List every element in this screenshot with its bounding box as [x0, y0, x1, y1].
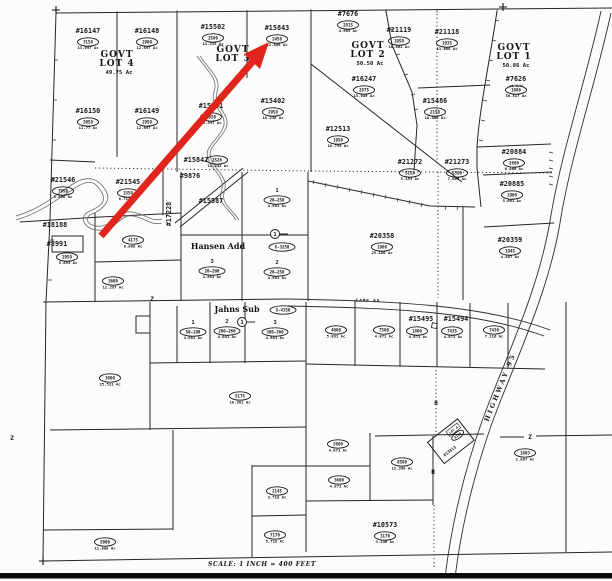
acreage-label: 12.297 Ac — [102, 285, 124, 290]
acreage-label: 12.897 Ac — [136, 125, 158, 130]
parcel-number: #16148 — [135, 27, 160, 35]
acreage-label: 5.155 Ac — [401, 176, 420, 181]
acreage-label: 10.001 Ac — [388, 44, 410, 49]
tax-lot-number: 3350 — [123, 191, 133, 196]
tax-lot-number: 7170 — [270, 533, 280, 538]
tax-lot-number: 7950 — [58, 189, 68, 194]
tax-lot-number: 2145 — [272, 489, 282, 494]
tax-lot-number: 1800 — [412, 329, 422, 334]
acreage-label: 25.511 Ac — [99, 382, 121, 387]
tax-lot-number: 2500 — [208, 36, 218, 41]
parcel-number: #16247 — [352, 75, 377, 83]
tax-lot-number: 2600 — [509, 161, 519, 166]
acreage-label: 4.881 Ac — [268, 275, 287, 280]
tax-lot-number: 1006 — [511, 88, 521, 93]
acreage-label: 13.398 Ac — [391, 466, 413, 471]
parcel-number: #21118 — [435, 28, 460, 36]
tax-lot-number: 2450 — [272, 37, 282, 42]
acreage-label: 4.881 Ac — [203, 274, 222, 279]
acreage-label: 4.871 Ac — [329, 448, 348, 453]
tax-lot-number: 2150 — [430, 110, 440, 115]
parcel-number: #21272 — [398, 158, 423, 166]
govt-lot-acreage: 49.75 Ac — [106, 70, 133, 76]
lot-number: 2 — [225, 319, 228, 325]
plat-map-canvas: #16147315013.097 Ac#16148290012.897 Ac#1… — [0, 0, 612, 581]
tax-lot-number: 1900 — [377, 245, 387, 250]
acreage-label: 4.985 Ac — [339, 28, 358, 33]
parcel-number: #12513 — [326, 125, 351, 133]
acreage-label: 11.888 Ac — [94, 546, 116, 551]
tax-lot-number: 2900 — [142, 40, 152, 45]
acreage-label: 10.008 Ac — [424, 115, 446, 120]
tax-lot-number: 3800 — [105, 376, 115, 381]
tax-lot-number: 8500 — [397, 460, 407, 465]
tax-lot-number: 1900 — [507, 193, 517, 198]
acreage-label: 10.981 Ac — [229, 400, 251, 405]
acreage-label: 56.817 Ac — [505, 93, 527, 98]
parcel-number: #15987 — [199, 197, 224, 205]
tax-lot-number: 4175 — [128, 238, 138, 243]
acreage-label: 25.186 Ac — [371, 250, 393, 255]
acreage-label: 13.097 Ac — [77, 45, 99, 50]
tax-lot-number: 3170 — [380, 534, 390, 539]
acreage-label: 7.065 Ac — [448, 176, 467, 181]
parcel-number: #7626 — [506, 75, 526, 83]
parcel-number: #10573 — [373, 521, 398, 529]
parcel-number: #21273 — [445, 158, 470, 166]
acreage-label: 11.242 Ac — [207, 163, 229, 168]
tax-lot-number: 200–260 — [218, 329, 236, 334]
parcel-number: #18188 — [43, 221, 68, 229]
tax-lot-number: 5350 — [452, 171, 462, 176]
tax-lot-number: 2815 — [343, 23, 353, 28]
tax-lot-number: 5000 — [100, 540, 110, 545]
tax-lot-number: 7435 — [447, 329, 457, 334]
acreage-label: 5.718 Ac — [266, 539, 285, 544]
acreage-label: 8.888 Ac — [124, 244, 143, 249]
acreage-label: 4.881 Ac — [218, 334, 237, 339]
tax-lot-number: X-3250 — [275, 245, 290, 250]
govt-lot-label: LOT 2 — [350, 50, 385, 60]
parcel-number: #21119 — [387, 26, 412, 34]
parcel-number: #15842 — [184, 156, 209, 164]
parcel-number: #16150 — [76, 107, 101, 115]
parcel-number: #9876 — [180, 172, 200, 180]
parcel-number: #7676 — [338, 10, 358, 18]
parcel-number: #15494 — [444, 315, 469, 323]
acreage-label: 3.718 Ac — [268, 495, 287, 500]
acreage-label: 4.871 Ac — [375, 334, 394, 339]
acreage-label: 4.881 Ac — [266, 335, 285, 340]
parcel-number: #16147 — [76, 27, 101, 35]
acreage-label: 13.888 Ac — [266, 42, 288, 47]
tax-lot-number: 5175 — [235, 394, 245, 399]
tax-lot-number: 3600 — [108, 279, 118, 284]
tax-lot-number: 20–250 — [270, 270, 285, 275]
line-jog-symbol: H — [431, 469, 435, 476]
tax-lot-number: 2526 — [212, 158, 222, 163]
parcel-number: #15486 — [423, 97, 448, 105]
tax-lot-number: 20–200 — [205, 269, 220, 274]
bottom-bar — [0, 573, 612, 579]
parcel-number: #21546 — [51, 176, 76, 184]
tax-lot-number: 50–100 — [186, 330, 201, 335]
subdivision-title: Jahns Sub — [213, 304, 259, 314]
parcel-number: #17228 — [165, 202, 173, 227]
parcel-number: #15495 — [409, 315, 434, 323]
line-jog-symbol: H — [434, 400, 438, 407]
line-jog-symbol: Z — [150, 296, 154, 303]
acreage-label: 5.696 Ac — [54, 194, 73, 199]
tax-lot-number: 1950 — [333, 138, 343, 143]
tax-lot-number: 300–360 — [266, 330, 284, 335]
acreage-label: 3.246 Ac — [376, 539, 395, 544]
plat-map: #16147315013.097 Ac#16148290012.897 Ac#1… — [0, 0, 612, 581]
tax-lot-number: 2600 — [333, 442, 343, 447]
parcel-number: #20359 — [498, 236, 523, 244]
tax-lot-number: 4000 — [331, 328, 341, 333]
tax-lot-number: 1945 — [505, 249, 515, 254]
lot-number: 2 — [275, 260, 278, 266]
acreage-label: 4.881 Ac — [184, 335, 203, 340]
acreage-label: 5.693 Ac — [59, 260, 78, 265]
acreage-label: 4.871 Ac — [330, 484, 349, 489]
acreage-label: 15.049 Ac — [353, 93, 375, 98]
acreage-label: 4.887 Ac — [501, 254, 520, 259]
tax-lot-number: 2950 — [142, 120, 152, 125]
tax-lot-number: X-4350 — [276, 308, 291, 313]
parcel-number: #15843 — [265, 24, 290, 32]
govt-lot-acreage: 50.50 Ac — [357, 61, 384, 67]
acreage-label: 6.066 Ac — [505, 166, 524, 171]
lot-number: 3 — [273, 320, 276, 326]
acreage-label: 5.001 Ac — [503, 198, 522, 203]
acreage-label: 18.238 Ac — [262, 115, 284, 120]
parcel-number: #20358 — [370, 232, 395, 240]
acreage-label: 18.759 Ac — [327, 143, 349, 148]
tax-lot-number: 1935 — [442, 41, 452, 46]
parcel-number: #21545 — [116, 178, 141, 186]
tax-lot-number: 3150 — [83, 40, 93, 45]
tax-lot-number: 1803 — [520, 451, 530, 456]
line-jog-symbol: Z — [10, 435, 14, 442]
tax-lot-number: 3600 — [334, 478, 344, 483]
acreage-label: 5.891 Ac — [327, 334, 346, 339]
tax-lot-number: 1950 — [394, 39, 404, 44]
acreage-label: 12.897 Ac — [136, 45, 158, 50]
acreage-label: 2.887 Ac — [516, 457, 535, 462]
parcel-number: #16149 — [135, 107, 160, 115]
acreage-label: 11.77 Ac — [79, 125, 98, 130]
govt-lot-label: LOT 3 — [215, 54, 250, 64]
tax-lot-number: 2950 — [62, 255, 72, 260]
road-label: CAMP RD — [356, 298, 381, 303]
tax-lot-number: 2875 — [359, 88, 369, 93]
govt-lot-label: LOT 4 — [99, 59, 134, 69]
parcel-number: #15402 — [261, 97, 286, 105]
parcel-number: #15502 — [201, 23, 226, 31]
tax-lot-number: 5150 — [405, 171, 415, 176]
parcel-number: #20885 — [500, 180, 525, 188]
line-jog-symbol: Z — [528, 434, 532, 441]
acreage-label: 4.871 Ac — [409, 334, 428, 339]
tax-lot-number: 7436 — [489, 328, 499, 333]
tax-lot-number: 7500 — [379, 328, 389, 333]
lot-number: 3 — [210, 259, 213, 265]
scale-label: SCALE: 1 INCH = 400 FEET — [208, 561, 316, 568]
tax-lot-number: 3050 — [83, 120, 93, 125]
parcel-number: #20884 — [502, 148, 527, 156]
subdivision-title: Hansen Add — [191, 241, 246, 251]
acreage-label: 13.688 Ac — [436, 46, 458, 51]
tax-lot-number: 2950 — [268, 110, 278, 115]
acreage-label: 4.871 Ac — [444, 334, 463, 339]
tax-lot-number: 20–250 — [270, 198, 285, 203]
parcel-number: #8991 — [47, 240, 67, 248]
acreage-label: 7.116 Ac — [485, 334, 504, 339]
acreage-label: 4.881 Ac — [268, 203, 287, 208]
govt-lot-label: LOT 1 — [496, 52, 531, 62]
govt-lot-acreage: 50.86 Ac — [503, 63, 530, 69]
